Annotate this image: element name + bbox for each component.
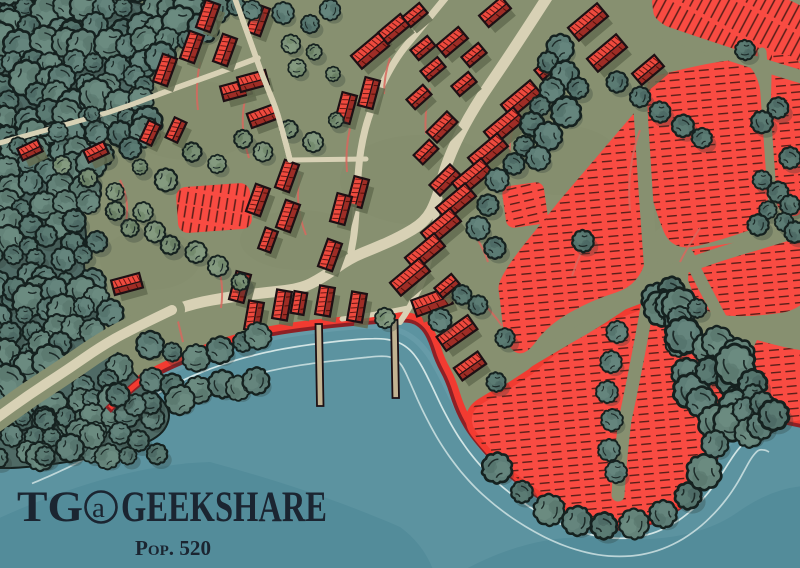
svg-text:a: a [92, 492, 105, 524]
svg-text:GEEKSHARE: GEEKSHARE [121, 484, 327, 531]
svg-text:Pop. 520: Pop. 520 [135, 536, 211, 560]
svg-text:TG: TG [17, 484, 83, 531]
